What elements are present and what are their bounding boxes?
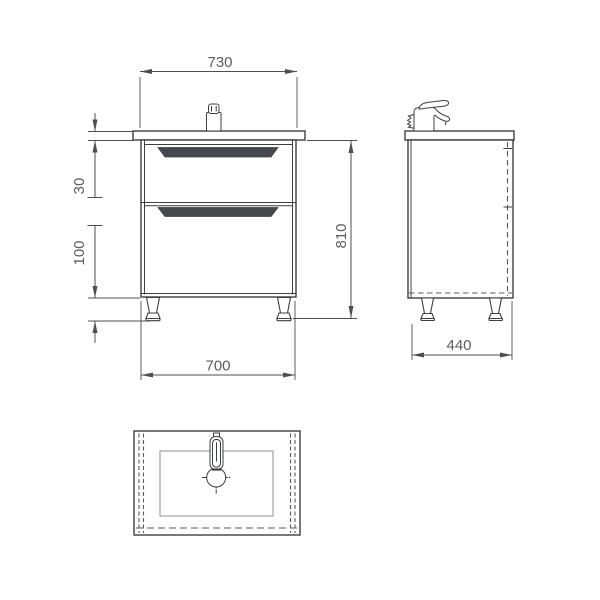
leg-foot	[421, 314, 434, 319]
leg-foot	[146, 313, 160, 319]
leg-base	[277, 319, 291, 321]
cabinet-side	[408, 140, 513, 298]
top-view	[134, 431, 300, 535]
leg-body	[422, 298, 434, 314]
faucet-body-spout	[414, 107, 450, 131]
countertop-side	[405, 131, 514, 140]
dim-cabinet-width: 700	[141, 301, 295, 380]
dimension-label: 100	[71, 240, 88, 265]
drawer-handle-recess-top	[158, 148, 278, 158]
leg-base	[146, 319, 160, 321]
faucet-side-icon	[408, 100, 450, 131]
technical-drawing-canvas: 730 30 100 810 700	[0, 0, 600, 600]
leg-foot	[277, 313, 291, 319]
leg-body	[490, 298, 502, 314]
faucet-aerator-tick	[446, 122, 447, 125]
dimension-label: 30	[71, 178, 88, 195]
faucet-front-icon	[207, 104, 222, 131]
leg-body	[147, 298, 160, 314]
leg-side-back	[489, 298, 503, 321]
dimension-label: 700	[205, 358, 230, 375]
faucet-top-icon	[210, 433, 223, 470]
dimension-label: 810	[333, 223, 350, 248]
leg-front-left	[146, 298, 160, 321]
front-view	[133, 104, 305, 321]
leg-base	[421, 319, 435, 321]
leg-side-front	[421, 298, 435, 321]
drawer-handle-recess-bottom	[158, 208, 278, 217]
faucet-lever	[209, 104, 220, 114]
leg-foot	[489, 314, 502, 319]
leg-body	[278, 298, 291, 314]
dimension-label: 730	[207, 54, 232, 71]
faucet-body	[207, 113, 222, 132]
dim-overall-height: 810	[293, 141, 357, 319]
drain-circle	[207, 468, 226, 487]
faucet-spray-detail	[408, 115, 415, 129]
dim-countertop-thickness: 30	[71, 113, 133, 198]
countertop-front	[133, 131, 305, 140]
cabinet-front	[141, 140, 296, 297]
dim-leg-height: 100	[71, 226, 151, 344]
dimension-label: 440	[446, 337, 471, 354]
vanity-orthographic-drawing: 730 30 100 810 700	[0, 0, 600, 600]
leg-front-right	[277, 298, 291, 321]
side-view	[405, 100, 514, 320]
leg-base	[489, 319, 503, 321]
faucet-lever	[419, 100, 449, 109]
